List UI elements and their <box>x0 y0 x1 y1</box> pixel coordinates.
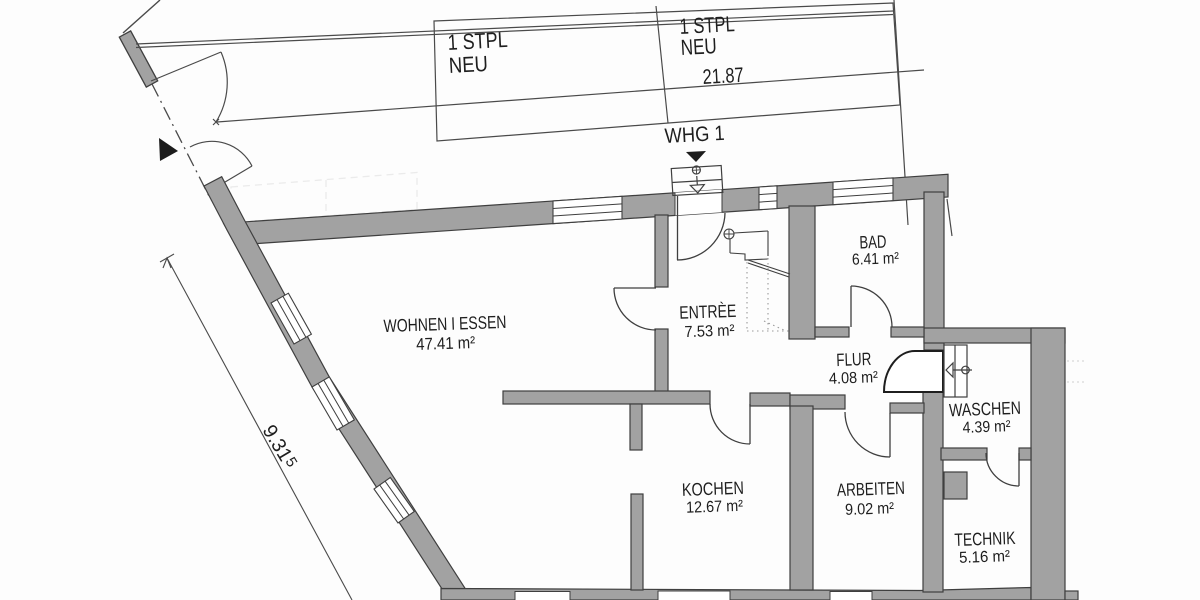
svg-text:KOCHEN: KOCHEN <box>682 478 745 500</box>
svg-text:TECHNIK: TECHNIK <box>954 528 1016 550</box>
svg-text:9.02 m²: 9.02 m² <box>845 500 895 519</box>
svg-text:ENTRÈE: ENTRÈE <box>679 301 737 323</box>
svg-text:NEU: NEU <box>448 51 488 78</box>
svg-text:12.67 m²: 12.67 m² <box>686 498 744 517</box>
svg-text:4.08 m²: 4.08 m² <box>829 369 879 388</box>
svg-text:ARBEITEN: ARBEITEN <box>837 478 906 500</box>
svg-text:4.39 m²: 4.39 m² <box>962 418 1011 437</box>
svg-text:WASCHEN: WASCHEN <box>949 398 1022 421</box>
svg-text:WHG 1: WHG 1 <box>664 122 725 148</box>
svg-text:BAD: BAD <box>859 232 887 253</box>
svg-text:21.87: 21.87 <box>702 64 744 89</box>
svg-text:6.41 m²: 6.41 m² <box>852 250 900 269</box>
svg-text:47.41 m²: 47.41 m² <box>416 333 476 354</box>
svg-text:NEU: NEU <box>680 33 717 60</box>
svg-text:FLUR: FLUR <box>836 349 872 370</box>
svg-text:7.53 m²: 7.53 m² <box>684 322 735 341</box>
svg-text:5.16 m²: 5.16 m² <box>959 548 1011 567</box>
